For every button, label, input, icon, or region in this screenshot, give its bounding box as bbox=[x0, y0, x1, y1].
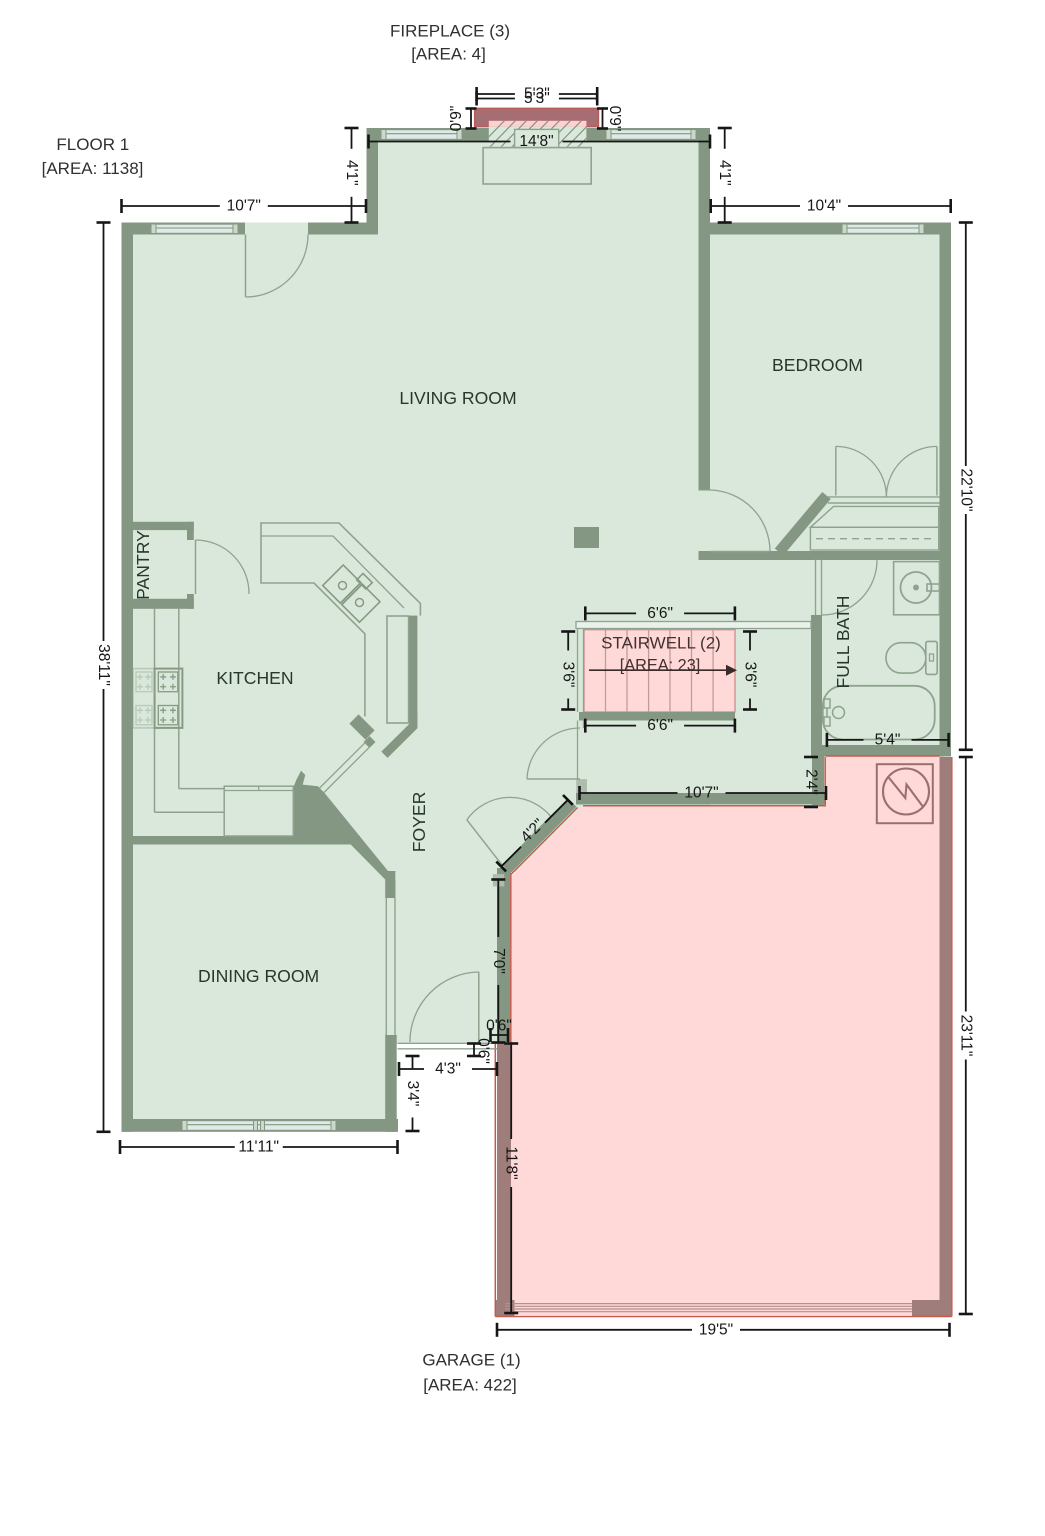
svg-text:3'6": 3'6" bbox=[742, 662, 759, 688]
svg-text:PANTRY: PANTRY bbox=[133, 530, 153, 600]
svg-text:3'4": 3'4" bbox=[404, 1081, 421, 1107]
svg-text:FIREPLACE (3): FIREPLACE (3) bbox=[390, 21, 510, 40]
svg-text:19'5": 19'5" bbox=[699, 1321, 733, 1338]
svg-text:FOYER: FOYER bbox=[409, 792, 429, 853]
svg-text:6'6": 6'6" bbox=[647, 717, 673, 734]
svg-text:10'4": 10'4" bbox=[807, 198, 841, 215]
svg-text:5'4": 5'4" bbox=[875, 731, 901, 748]
svg-text:FLOOR 1: FLOOR 1 bbox=[56, 135, 129, 154]
svg-text:10'7": 10'7" bbox=[684, 785, 718, 802]
svg-text:23'11": 23'11" bbox=[957, 1015, 974, 1057]
svg-text:STAIRWELL (2): STAIRWELL (2) bbox=[601, 634, 721, 653]
svg-text:LIVING ROOM: LIVING ROOM bbox=[399, 388, 516, 408]
svg-text:4'3": 4'3" bbox=[435, 1061, 461, 1078]
svg-text:0'9": 0'9" bbox=[448, 106, 465, 132]
svg-text:5'3": 5'3" bbox=[524, 90, 550, 107]
svg-text:11'11": 11'11" bbox=[238, 1139, 279, 1156]
svg-text:4'1": 4'1" bbox=[343, 160, 360, 186]
svg-text:38'11": 38'11" bbox=[95, 644, 112, 686]
svg-text:GARAGE (1): GARAGE (1) bbox=[422, 1351, 520, 1370]
svg-text:FULL BATH: FULL BATH bbox=[833, 596, 853, 689]
svg-text:4'1": 4'1" bbox=[716, 160, 733, 186]
svg-text:[AREA: 23]: [AREA: 23] bbox=[620, 656, 701, 674]
svg-text:0'6": 0'6" bbox=[486, 1018, 512, 1035]
svg-text:6'6": 6'6" bbox=[647, 605, 673, 622]
svg-text:7'0": 7'0" bbox=[490, 948, 507, 974]
svg-text:11'8": 11'8" bbox=[503, 1146, 520, 1179]
svg-text:KITCHEN: KITCHEN bbox=[216, 668, 293, 688]
svg-text:10'7": 10'7" bbox=[227, 198, 261, 215]
svg-text:[AREA: 4]: [AREA: 4] bbox=[411, 44, 486, 63]
svg-text:14'8": 14'8" bbox=[519, 133, 553, 150]
svg-text:[AREA: 1138]: [AREA: 1138] bbox=[42, 159, 144, 178]
svg-text:3'6": 3'6" bbox=[560, 662, 577, 688]
svg-text:DINING ROOM: DINING ROOM bbox=[198, 966, 319, 986]
svg-text:BEDROOM: BEDROOM bbox=[772, 355, 863, 375]
svg-text:0'9": 0'9" bbox=[606, 106, 623, 132]
svg-text:0'6": 0'6" bbox=[475, 1038, 492, 1064]
svg-text:22'10": 22'10" bbox=[957, 469, 974, 512]
svg-text:[AREA: 422]: [AREA: 422] bbox=[423, 1376, 517, 1395]
svg-text:2'4": 2'4" bbox=[803, 769, 820, 795]
